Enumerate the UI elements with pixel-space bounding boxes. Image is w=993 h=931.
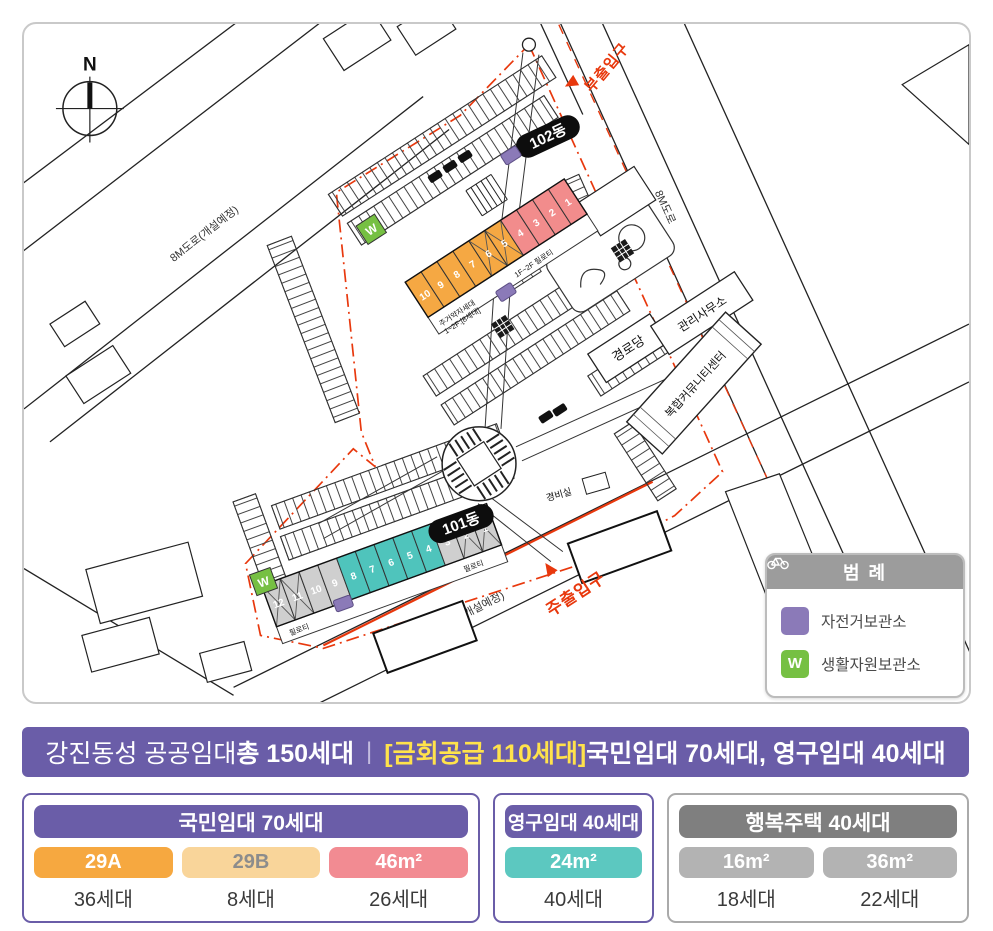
legend-label-bicycle: 자전거보관소 — [821, 610, 907, 632]
card-haengbok: 행복주택 40세대 16m² 18세대 36m² 22세대 — [667, 793, 969, 923]
svg-text:경비실: 경비실 — [545, 486, 573, 505]
chip-46: 46m² — [329, 847, 468, 878]
legend-label-resource: 생활자원보관소 — [821, 653, 921, 675]
bicycle-icon — [781, 607, 809, 635]
unit-col-29b: 29B 8세대 — [182, 847, 321, 912]
main-entrance: 주출입구 — [540, 560, 608, 620]
map-legend: 범 례 자전거보관소 W 생활자원보관소 — [765, 553, 965, 698]
banner-separator: | — [366, 738, 372, 766]
card-gukmin-header: 국민임대 70세대 — [34, 805, 468, 838]
legend-item-resource: W 생활자원보관소 — [781, 642, 949, 685]
legend-title: 범 례 — [767, 555, 963, 589]
unit-col-24: 24m² 40세대 — [505, 847, 642, 912]
count-46: 26세대 — [329, 883, 468, 912]
card-gukmin: 국민임대 70세대 29A 36세대 29B 8세대 46m² 26세대 — [22, 793, 480, 923]
card-yeonggu: 영구임대 40세대 24m² 40세대 — [493, 793, 654, 923]
banner-breakdown: 국민임대 70세대, 영구임대 40세대 — [586, 734, 945, 770]
card-yeonggu-header: 영구임대 40세대 — [505, 805, 642, 838]
count-36: 22세대 — [823, 883, 958, 912]
road-label-left: 8M도로(개설예정) — [168, 203, 241, 264]
count-29a: 36세대 — [34, 883, 173, 912]
unit-col-29a: 29A 36세대 — [34, 847, 173, 912]
page: 8M도로(개설예정) 8M도로 8M도로(개설예정) — [0, 0, 993, 931]
compass-n-label: N — [83, 55, 97, 76]
banner-highlight: [금회공급 110세대] — [384, 734, 586, 770]
banner-title: 강진동성 공공임대 — [45, 734, 236, 770]
unit-col-36: 36m² 22세대 — [823, 847, 958, 912]
chip-29a: 29A — [34, 847, 173, 878]
chip-29b: 29B — [182, 847, 321, 878]
compass: N — [56, 55, 124, 143]
security-office: 경비실 — [544, 472, 610, 505]
chip-16: 16m² — [679, 847, 814, 878]
legend-item-bicycle: 자전거보관소 — [781, 599, 949, 642]
chip-36: 36m² — [823, 847, 958, 878]
count-24: 40세대 — [505, 883, 642, 912]
unit-col-46: 46m² 26세대 — [329, 847, 468, 912]
banner-total: 총 150세대 — [236, 734, 354, 770]
card-haengbok-header: 행복주택 40세대 — [679, 805, 957, 838]
svg-text:부출입구: 부출입구 — [582, 40, 633, 96]
site-plan-map: 8M도로(개설예정) 8M도로 8M도로(개설예정) — [22, 22, 971, 704]
count-16: 18세대 — [679, 883, 814, 912]
unit-col-16: 16m² 18세대 — [679, 847, 814, 912]
stairs — [466, 174, 507, 215]
w-icon: W — [781, 650, 809, 678]
summary-banner: 강진동성 공공임대 총 150세대 | [금회공급 110세대] 국민임대 70… — [22, 727, 969, 777]
chip-24: 24m² — [505, 847, 642, 878]
count-29b: 8세대 — [182, 883, 321, 912]
unit-type-cards: 국민임대 70세대 29A 36세대 29B 8세대 46m² 26세대 영구임… — [22, 793, 969, 923]
manhole-circle — [522, 38, 535, 51]
